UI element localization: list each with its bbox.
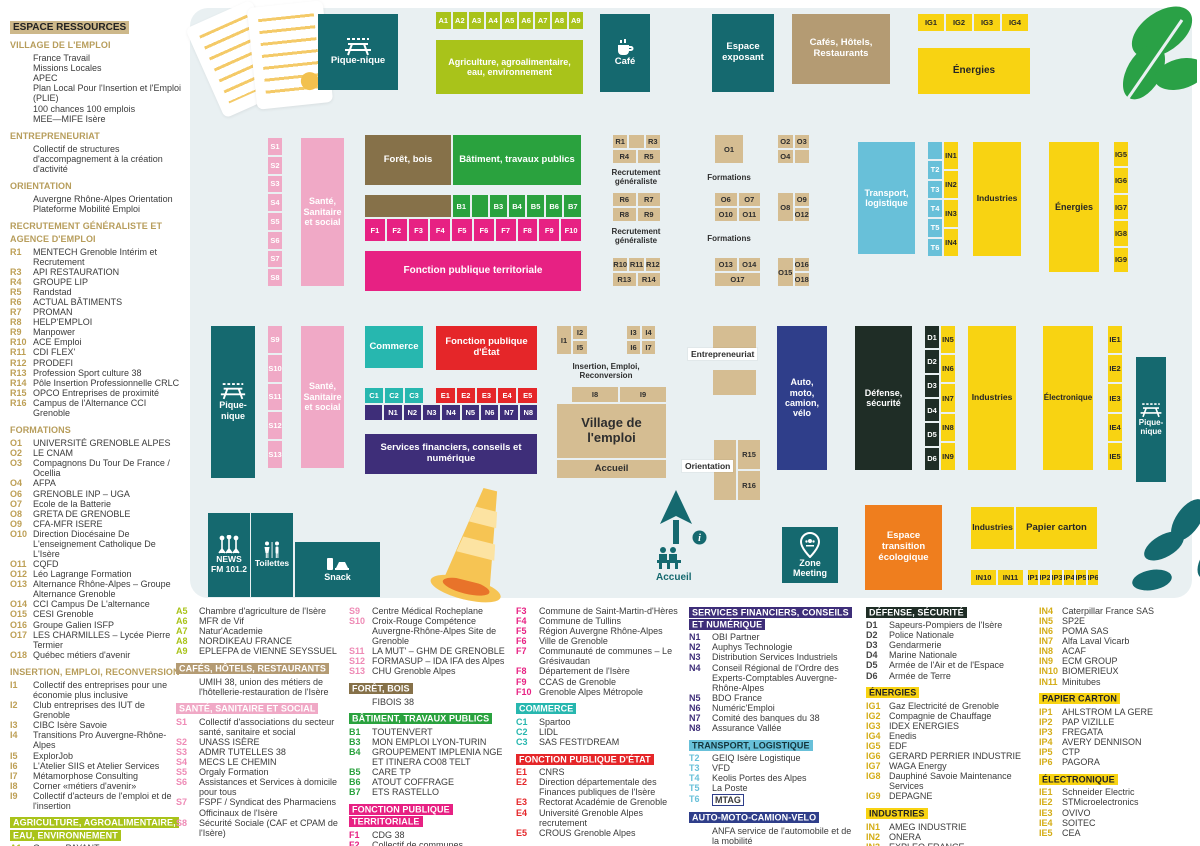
- stand-group-o1: O1: [715, 135, 743, 163]
- legend-item: F3Commune de Saint-Martin-d'Hères: [516, 606, 682, 616]
- stand-R3: R3: [646, 135, 660, 148]
- stand-IN5: IN5: [941, 326, 955, 353]
- stand-N4: N4: [442, 405, 459, 420]
- legend-item: E1CNRS: [516, 767, 682, 777]
- stand-C1: C1: [365, 388, 383, 403]
- zone-services-financiers: Services financiers, conseils et numériq…: [365, 434, 537, 474]
- legend-item: D5Armée de l'Air et de l'Espace: [866, 660, 1032, 670]
- zone-cafe: Café: [600, 14, 650, 92]
- stand-N7: N7: [500, 405, 517, 420]
- stand-I1: I1: [557, 326, 571, 354]
- legend-item: UMIH 38, union des métiers de l'hôteller…: [176, 677, 342, 697]
- legend-item: A7Natur'Academie: [176, 626, 342, 636]
- stand-IG7: IG7: [1114, 195, 1128, 219]
- stand-R7: R7: [638, 193, 661, 206]
- zone-commerce: Commerce: [365, 326, 423, 368]
- stand-I5: I5: [573, 341, 587, 354]
- stand-R4: R4: [613, 150, 636, 163]
- stand-T2: T2: [928, 161, 942, 178]
- legend-item: O10Direction Diocésaine De L'enseignemen…: [10, 529, 182, 559]
- stand-O7: O7: [739, 193, 761, 206]
- stand-I9: I9: [620, 387, 666, 402]
- stand-T6: T6: [928, 239, 942, 256]
- stand-O18: O18: [795, 273, 810, 286]
- stand-I6: I6: [627, 341, 640, 354]
- stand-IP1: IP1: [1028, 570, 1038, 585]
- stand-D3: D3: [925, 375, 939, 397]
- legend-section: AGRICULTURE, AGROALIMENTAIRE, EAU, ENVIR…: [10, 817, 182, 846]
- stand-F1: F1: [365, 219, 385, 241]
- legend-section: ÉNERGIESIG1Gaz Electricité de GrenobleIG…: [866, 687, 1032, 802]
- legend-section: IN4Caterpillar France SASIN5SP2EIN6POMA …: [1039, 606, 1189, 687]
- legend-item: D1Sapeurs-Pompiers de l'Isère: [866, 620, 1032, 630]
- stand-N2: N2: [404, 405, 421, 420]
- legend-item: T6MTAG: [689, 794, 859, 806]
- zone-toilettes: Toilettes: [251, 513, 293, 597]
- section-heading: SERVICES FINANCIERS, CONSEILS ET NUMÉRIQ…: [689, 606, 859, 630]
- stand-O2: O2: [778, 135, 793, 148]
- stand-IG5: IG5: [1114, 142, 1128, 166]
- legend-item: R3API RESTAURATION: [10, 267, 182, 277]
- stand-E3: E3: [477, 388, 496, 403]
- label-insertion: Insertion, Emploi, Reconversion: [546, 362, 666, 380]
- stand-IE4: IE4: [1108, 414, 1122, 441]
- stand-IN8: IN8: [941, 414, 955, 441]
- legend-item: O8GRETA DE GRENOBLE: [10, 509, 182, 519]
- legend-column-2: S9Centre Médical RocheplaneS10Croix-Roug…: [349, 606, 509, 846]
- stand-S9: S9: [268, 326, 282, 353]
- info-icon: i: [692, 530, 707, 545]
- stand-F6: F6: [474, 219, 494, 241]
- stand-O10: O10: [715, 208, 737, 221]
- stand-E2: E2: [457, 388, 476, 403]
- legend-item: F7Communauté de communes – Le Grésivauda…: [516, 646, 682, 666]
- stand-IE1: IE1: [1108, 326, 1122, 353]
- legend-section: DÉFENSE, SÉCURITÉD1Sapeurs-Pompiers de l…: [866, 606, 1032, 681]
- stand-empty: [629, 135, 643, 148]
- snack-icon: [326, 556, 350, 572]
- legend-item: O17LES CHARMILLES – Lycée Pierre Termier: [10, 630, 182, 650]
- legend-item: IN4Caterpillar France SAS: [1039, 606, 1189, 616]
- legend-item: IN7Alfa Laval Vicarb: [1039, 636, 1189, 646]
- stand-R10: R10: [613, 258, 627, 271]
- stand-IE3: IE3: [1108, 384, 1122, 411]
- stand-O17: O17: [715, 273, 760, 286]
- legend-item: I7Métamorphose Consulting: [10, 771, 182, 781]
- legend-item: ANFA service de l'automobile et de la mo…: [689, 826, 859, 846]
- zone-foret-bois: Forêt, bois: [365, 135, 451, 185]
- legend-section: CAFÉS, HÔTELS, RESTAURANTSUMIH 38, union…: [176, 662, 342, 696]
- legend: A5Chambre d'agriculture de l'IsèreA6MFR …: [176, 606, 1189, 846]
- zone-foret-strip: [365, 195, 451, 217]
- legend-item: IE4SOITEC: [1039, 818, 1189, 828]
- stand-S5: S5: [268, 213, 282, 230]
- legend-item: IP6PAGORA: [1039, 757, 1189, 767]
- stand-row-ig-top: IG1IG2IG3IG4: [918, 14, 1028, 31]
- legend-item: A9EPLEFPA de VIENNE SEYSSUEL: [176, 646, 342, 656]
- stand-IN6: IN6: [941, 355, 955, 382]
- stand-R5: R5: [638, 150, 661, 163]
- meeting-pin-icon: [799, 532, 821, 558]
- legend-item: IN11Minitubes: [1039, 677, 1189, 687]
- legend-item: R1MENTECH Grenoble Intérim et Recrutemen…: [10, 247, 182, 267]
- stand-F5: F5: [452, 219, 472, 241]
- legend-section: BÂTIMENT, TRAVAUX PUBLICSB1TOUTENVERTB3M…: [349, 713, 509, 798]
- section-heading: FORÊT, BOIS: [349, 683, 509, 695]
- stand-O15: O15: [778, 258, 793, 286]
- legend-item: FIBOIS 38: [349, 697, 509, 707]
- zone-transport-logistique: Transport, logistique: [858, 142, 915, 254]
- legend-item: R9Manpower: [10, 327, 182, 337]
- stand-IG4: IG4: [1002, 14, 1028, 31]
- stand-T4: T4: [928, 200, 942, 217]
- stand-O13: O13: [715, 258, 737, 271]
- legend-item: F6Ville de Grenoble: [516, 636, 682, 646]
- stand-IE2: IE2: [1108, 355, 1122, 382]
- zone-espace-exposant: Espace exposant: [712, 14, 774, 92]
- legend-item: IG1Gaz Electricité de Grenoble: [866, 701, 1032, 711]
- stand-I2: I2: [573, 326, 587, 339]
- legend-item: IE2STMicroelectronics: [1039, 797, 1189, 807]
- stand-B6: B6: [546, 195, 563, 217]
- legend-item: S2UNASS ISÈRE: [176, 737, 342, 747]
- stand-row-n: N1N2N3N4N5N6N7N8: [365, 405, 537, 420]
- legend-item: N4Conseil Régional de l'Ordre des Expert…: [689, 663, 859, 693]
- stand-empty: [795, 150, 810, 163]
- legend-item: Plan Local Pour l'Insertion et l'Emploi …: [10, 83, 182, 103]
- legend-item: O6GRENOBLE INP – UGA: [10, 489, 182, 499]
- legend-item: N7Comité des banques du 38: [689, 713, 859, 723]
- stand-A6: A6: [519, 12, 534, 29]
- legend-item: IN10BIOMERIEUX: [1039, 666, 1189, 676]
- legend-item: S9Centre Médical Rocheplane: [349, 606, 509, 616]
- stand-N8: N8: [520, 405, 537, 420]
- stand-A8: A8: [552, 12, 567, 29]
- stand-IN7: IN7: [941, 384, 955, 411]
- legend-item: S5Orgaly Formation: [176, 767, 342, 777]
- legend-item: S3ADMR TUTELLES 38: [176, 747, 342, 757]
- legend-item: IG6GERARD PERRIER INDUSTRIE: [866, 751, 1032, 761]
- stand-F9: F9: [539, 219, 559, 241]
- legend-item: S11LA MUT' – GHM DE GRENOBLE: [349, 646, 509, 656]
- zone-energies-side: Énergies: [1049, 142, 1099, 272]
- legend-item: IE3OVIVO: [1039, 808, 1189, 818]
- legend-item: S13CHU Grenoble Alpes: [349, 666, 509, 676]
- legend-section: INDUSTRIESIN1AMEG INDUSTRIEIN2ONERAIN3EX…: [866, 808, 1032, 846]
- stand-N1: N1: [384, 405, 401, 420]
- legend-item: O15CESI Grenoble: [10, 609, 182, 619]
- legend-item: R4GROUPE LIP: [10, 277, 182, 287]
- stand-O8: O8: [778, 193, 793, 221]
- legend-item: IG4Enedis: [866, 731, 1032, 741]
- legend-item: B6ATOUT COFFRAGE: [349, 777, 509, 787]
- legend-item: IN8ACAF: [1039, 646, 1189, 656]
- stand-A3: A3: [469, 12, 484, 29]
- stand-R9: R9: [638, 208, 661, 221]
- legend-item: N8Assurance Vallée: [689, 723, 859, 733]
- stand-IP5: IP5: [1076, 570, 1086, 585]
- picnic-table-icon: [343, 38, 373, 56]
- stand-D5: D5: [925, 423, 939, 445]
- leaf-decoration-top-right: [1102, 2, 1197, 114]
- legend-item: S8Sécurité Sociale (CAF et CPAM de l'Isè…: [176, 818, 342, 838]
- stand-A1: A1: [436, 12, 451, 29]
- legend-item: I9Collectif d'acteurs de l'emploi et de …: [10, 791, 182, 811]
- stand-row-f: F1F2F3F4F5F6F7F8F9F10: [365, 219, 581, 241]
- legend-item: R15OPCO Entreprises de proximité: [10, 388, 182, 398]
- stand-cols-d-in: D1D2D3D4D5D6 IN5IN6IN7IN8IN9: [925, 326, 955, 470]
- stand-S8: S8: [268, 269, 282, 286]
- stand-F4: F4: [430, 219, 450, 241]
- label-accueil-entrance: Accueil: [656, 572, 692, 583]
- legend-item: C3SAS FESTI'DREAM: [516, 737, 682, 747]
- stand-B5: B5: [527, 195, 544, 217]
- stand-C2: C2: [385, 388, 403, 403]
- legend-section: RECRUTEMENT GÉNÉRALISTE ET AGENCE D'EMPL…: [10, 220, 182, 418]
- legend-item: N1OBI Partner: [689, 632, 859, 642]
- legend-item: T3VFD: [689, 763, 859, 773]
- legend-item: C2LIDL: [516, 727, 682, 737]
- legend-item: R16Campus de l'Alternance CCI Grenoble: [10, 398, 182, 418]
- legend-section: INSERTION, EMPLOI, RECONVERSIONI1Collect…: [10, 666, 182, 811]
- section-heading: FONCTION PUBLIQUE D'ÉTAT: [516, 753, 682, 765]
- zone-pique-nique-3: Pique-nique: [1136, 357, 1166, 482]
- stand-empty: [365, 405, 382, 420]
- section-heading: ÉNERGIES: [866, 687, 1032, 699]
- plant-decoration-bottom-right: [1118, 490, 1200, 615]
- stand-col-s9-s13: S9S10S11S12S13: [268, 326, 282, 468]
- stand-D4: D4: [925, 399, 939, 421]
- stand-A5: A5: [502, 12, 517, 29]
- zone-fonction-publique-territoriale: Fonction publique territoriale: [365, 251, 581, 291]
- zone-defense-securite: Défense, sécurité: [855, 326, 912, 470]
- stand-B3: B3: [490, 195, 507, 217]
- legend-item: E5CROUS Grenoble Alpes: [516, 828, 682, 838]
- picnic-table-icon: [219, 383, 247, 400]
- stand-IN10: IN10: [971, 570, 996, 585]
- stand-S11: S11: [268, 384, 282, 411]
- stand-O6: O6: [715, 193, 737, 206]
- legend-item: N6Numéric'Emploi: [689, 703, 859, 713]
- legend-item: O9CFA-MFR ISERE: [10, 519, 182, 529]
- legend-item: O16Groupe Galien ISFP: [10, 620, 182, 630]
- legend-item: IG8Dauphiné Savoie Maintenance Services: [866, 771, 1032, 791]
- stand-T3: T3: [928, 181, 942, 198]
- stand-group-i3-i7: I3I4I6I7: [627, 326, 655, 354]
- section-heading: FONCTION PUBLIQUE TERRITORIALE: [349, 803, 509, 827]
- zone-energies-top: Énergies: [918, 48, 1030, 94]
- legend-item: Missions Locales: [10, 63, 182, 73]
- legend-item: I8Corner «métiers d'avenir»: [10, 781, 182, 791]
- picnic-table-icon: [1139, 403, 1163, 418]
- stand-group-o2: O2O3O4: [778, 135, 809, 163]
- stand-col-ie: IE1IE2IE3IE4IE5: [1108, 326, 1122, 470]
- legend-item: MEE—MIFE Isère: [10, 114, 182, 124]
- legend-item: O13Alternance Rhône-Alpes – Groupe Alter…: [10, 579, 182, 599]
- stand-col-ig5-ig9: IG5IG6IG7IG8IG9: [1114, 142, 1128, 272]
- legend-item: R6ACTUAL BÂTIMENTS: [10, 297, 182, 307]
- legend-item: Collectif de structures d'accompagnement…: [10, 144, 182, 174]
- microphones-icon: [217, 535, 241, 555]
- section-heading: ORIENTATION: [10, 180, 182, 192]
- legend-item: E3Rectorat Académie de Grenoble: [516, 797, 682, 807]
- zone-industries-3: Industries: [971, 507, 1014, 549]
- legend-item: R11CDI FLEX': [10, 347, 182, 357]
- legend-item: O11CQFD: [10, 559, 182, 569]
- legend-item: IG7WAGA Energy: [866, 761, 1032, 771]
- legend-section: S9Centre Médical RocheplaneS10Croix-Roug…: [349, 606, 509, 677]
- stand-IN3: IN3: [944, 200, 958, 227]
- legend-item: T5La Poste: [689, 783, 859, 793]
- stand-F10: F10: [561, 219, 581, 241]
- stand-IP4: IP4: [1064, 570, 1074, 585]
- label-orientation: Orientation: [682, 460, 733, 472]
- legend-item: I1Collectif des entreprises pour une éco…: [10, 680, 182, 700]
- stand-T5: T5: [928, 219, 942, 236]
- stand-IG3: IG3: [974, 14, 1000, 31]
- zone-pique-nique-1: Pique-nique: [318, 14, 398, 90]
- stand-S1: S1: [268, 138, 282, 155]
- legend-item: R8HELP'EMPLOI: [10, 317, 182, 327]
- section-heading: COMMERCE: [516, 703, 682, 715]
- stand-E5: E5: [518, 388, 537, 403]
- section-heading: CAFÉS, HÔTELS, RESTAURANTS: [176, 662, 342, 674]
- restroom-icon: [262, 541, 282, 559]
- legend-column-3: F3Commune de Saint-Martin-d'HèresF4Commu…: [516, 606, 682, 846]
- stand-empty: [928, 142, 942, 159]
- section-heading: INDUSTRIES: [866, 808, 1032, 820]
- stand-entrepreneuriat-2: [713, 370, 756, 395]
- stand-S10: S10: [268, 355, 282, 382]
- stand-R16: R16: [738, 471, 760, 500]
- legend-section: PAPIER CARTONIP1AHLSTROM LA GEREIP2PAP V…: [1039, 693, 1189, 768]
- legend-item: S6Assistances et Services à domicile pou…: [176, 777, 342, 797]
- up-arrow-icon: [658, 490, 694, 546]
- legend-item: O1UNIVERSITÉ GRENOBLE ALPES: [10, 438, 182, 448]
- entrance-arrow-group: i Accueil: [648, 490, 710, 590]
- floorplan-map: Pique-nique A1A2A3A4A5A6A7A8A9 Agricultu…: [190, 8, 1192, 598]
- resources-sidebar: ESPACE RESSOURCES VILLAGE DE L'EMPLOIFra…: [10, 22, 182, 846]
- stand-N3: N3: [423, 405, 440, 420]
- legend-item: IP4AVERY DENNISON: [1039, 737, 1189, 747]
- stand-N6: N6: [481, 405, 498, 420]
- legend-item: R14Pôle Insertion Professionnelle CRLC: [10, 378, 182, 388]
- legend-section: AUTO-MOTO-CAMION-VELOANFA service de l'a…: [689, 812, 859, 846]
- stand-group-r2: R6R7R8R9: [613, 193, 660, 221]
- stand-B7: B7: [564, 195, 581, 217]
- legend-item: F9CCAS de Grenoble: [516, 677, 682, 687]
- section-heading: AGRICULTURE, AGROALIMENTAIRE, EAU, ENVIR…: [10, 817, 182, 841]
- section-heading: ÉLECTRONIQUE: [1039, 773, 1189, 785]
- zone-sante-1: Santé, Sanitaire et social: [301, 138, 344, 286]
- legend-item: O2LE CNAM: [10, 448, 182, 458]
- stand-E4: E4: [498, 388, 517, 403]
- section-heading: PAPIER CARTON: [1039, 693, 1189, 705]
- legend-item: F5Région Auvergne Rhône-Alpes: [516, 626, 682, 636]
- stand-S7: S7: [268, 251, 282, 268]
- legend-section: FONCTION PUBLIQUE TERRITORIALEF1CDG 38F2…: [349, 803, 509, 846]
- legend-section: ÉLECTRONIQUEIE1Schneider ElectricIE2STMi…: [1039, 773, 1189, 838]
- label-formations-2: Formations: [678, 234, 780, 243]
- stand-group-r3: R10R11R12R13R14: [613, 258, 660, 286]
- stand-N5: N5: [462, 405, 479, 420]
- legend-item: R10ACE Emploi: [10, 337, 182, 347]
- legend-section: ENTREPRENEURIATCollectif de structures d…: [10, 130, 182, 174]
- stand-group-o15: O15 O16O18: [778, 258, 809, 286]
- legend-section: SERVICES FINANCIERS, CONSEILS ET NUMÉRIQ…: [689, 606, 859, 733]
- zone-industries-2: Industries: [968, 326, 1016, 470]
- legend-item: D2Police Nationale: [866, 630, 1032, 640]
- stand-O16: O16: [795, 258, 810, 271]
- stand-I7: I7: [642, 341, 655, 354]
- stand-D6: D6: [925, 448, 939, 470]
- legend-item: A8NORDIKEAU FRANCE: [176, 636, 342, 646]
- section-heading: RECRUTEMENT GÉNÉRALISTE ET AGENCE D'EMPL…: [10, 220, 182, 244]
- stand-group-o5: O13O14O17: [715, 258, 760, 286]
- legend-column-1: A5Chambre d'agriculture de l'IsèreA6MFR …: [176, 606, 342, 846]
- event-floorplan-page: { "map": { "picnic": "Pique-nique", "agr…: [0, 0, 1200, 846]
- svg-text:i: i: [698, 533, 701, 544]
- legend-item: N5BDO France: [689, 693, 859, 703]
- stand-R1: R1: [613, 135, 627, 148]
- legend-item: F1CDG 38: [349, 830, 509, 840]
- stand-R14: R14: [638, 273, 661, 286]
- zone-cafes-hotels-restaurants: Cafés, Hôtels, Restaurants: [792, 14, 890, 84]
- legend-section: ORIENTATIONAuvergne Rhône-Alpes Orientat…: [10, 180, 182, 214]
- legend-item: F8Département de l'Isère: [516, 666, 682, 676]
- legend-item: O3Compagnons Du Tour De France / Ocellia: [10, 458, 182, 478]
- legend-section: SANTÉ, SANITAIRE ET SOCIALS1Collectif d'…: [176, 703, 342, 838]
- stand-F2: F2: [387, 219, 407, 241]
- stand-F7: F7: [496, 219, 516, 241]
- sidebar-sections: VILLAGE DE L'EMPLOIFrance TravailMission…: [10, 39, 182, 846]
- stand-row-a: A1A2A3A4A5A6A7A8A9: [436, 12, 583, 29]
- stand-R12: R12: [646, 258, 660, 271]
- stand-R15: R15: [738, 440, 760, 469]
- stand-I3: I3: [627, 326, 640, 339]
- stand-group-o8: O8 O9O12: [778, 193, 809, 221]
- stand-IG9: IG9: [1114, 248, 1128, 272]
- legend-item: I4Transitions Pro Auvergne-Rhône-Alpes: [10, 730, 182, 750]
- stand-D1: D1: [925, 326, 939, 348]
- legend-section: FORMATIONSO1UNIVERSITÉ GRENOBLE ALPESO2L…: [10, 424, 182, 660]
- section-heading: INSERTION, EMPLOI, RECONVERSION: [10, 666, 182, 678]
- section-heading: TRANSPORT, LOGISTIQUE: [689, 739, 859, 751]
- legend-item: N3Distribution Services Industriels: [689, 652, 859, 662]
- stand-group-r1: R1R3R4R5: [613, 135, 660, 163]
- stand-S2: S2: [268, 157, 282, 174]
- legend-item: I6L'Atelier SIIS et Atelier Services: [10, 761, 182, 771]
- stand-IN11: IN11: [998, 570, 1023, 585]
- legend-section: FONCTION PUBLIQUE D'ÉTATE1CNRSE2Directio…: [516, 753, 682, 838]
- legend-item: I5ExplorJob: [10, 751, 182, 761]
- stand-S12: S12: [268, 412, 282, 439]
- stand-S13: S13: [268, 441, 282, 468]
- stand-B4: B4: [509, 195, 526, 217]
- legend-item: D3Gendarmerie: [866, 640, 1032, 650]
- stand-O12: O12: [795, 208, 810, 221]
- stand-empty: [472, 195, 489, 217]
- stand-R6: R6: [613, 193, 636, 206]
- stand-O3: O3: [795, 135, 810, 148]
- stand-S4: S4: [268, 194, 282, 211]
- legend-item: IE5CEA: [1039, 828, 1189, 838]
- legend-item: France Travail: [10, 53, 182, 63]
- zone-snack: Snack: [295, 542, 380, 597]
- stand-A9: A9: [569, 12, 584, 29]
- zone-meeting: Zone Meeting: [782, 527, 838, 583]
- stand-row-e: E1E2E3E4E5: [436, 388, 537, 403]
